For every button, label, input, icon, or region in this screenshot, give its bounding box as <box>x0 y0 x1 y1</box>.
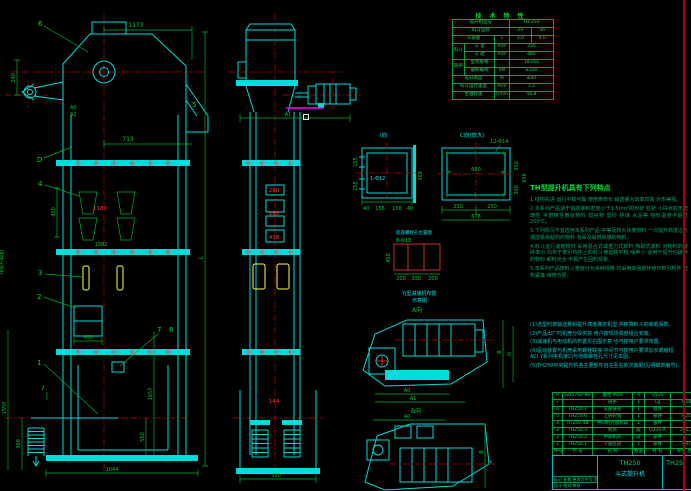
drawing-model: TH250 <box>598 459 662 467</box>
balloon-7: 7 <box>157 326 161 334</box>
drive-dim-a: a <box>488 460 494 463</box>
bom-wt: 087 <box>671 442 691 449</box>
bom-code: TH250.6 <box>563 414 593 421</box>
spec-value: 250 <box>509 44 553 52</box>
detail-c-300: 300 <box>514 185 520 195</box>
detail-i-b4: 40 <box>407 206 413 212</box>
drawing-number-partial: TH25 <box>666 459 683 467</box>
bom-name: 中部机壳 <box>593 435 633 442</box>
feature-line: 3.下列情况不宜选用本系列产品 中等及较大块度物料 一次提升高度过大 潮湿极易粘… <box>530 228 688 242</box>
drive-dim-a0: A0 <box>404 388 411 394</box>
spec-value: 3.0 <box>509 36 531 44</box>
bom-no: 1 <box>553 442 563 449</box>
bom-qty: 段 <box>633 435 645 442</box>
title-block-number-zone: TH25 <box>663 456 691 489</box>
bom-wt <box>671 393 691 400</box>
bom-wt: 9.06 <box>671 400 691 407</box>
feature-line: 2.本系列产品适于输送堆积密度小于1.5t/m³的粉状 粒状 小块状的无磨琢性 … <box>530 206 688 226</box>
bom-wt <box>671 407 691 414</box>
spec-row: 斗容量 L 3.0 4.0 <box>453 36 554 44</box>
bolt-plan-200b: 200 <box>428 276 438 282</box>
side-elevation-view: A1 280 180 438 144 520 <box>228 0 363 491</box>
bom-no: 7 <box>553 400 563 407</box>
dim-1382: 1382 <box>95 242 108 248</box>
title-block: 标记 处数 更改文件号 签字 日期 设计 校对 审核 TH250 斗式提升机 T… <box>552 455 691 490</box>
bom-wt <box>671 421 691 428</box>
spec-label: 料斗型式 <box>453 28 510 36</box>
spec-value: TH 250 <box>509 20 553 28</box>
dim-280: 280 <box>269 188 280 194</box>
detail-c-250a: 250 <box>453 204 463 210</box>
balloon-D: D <box>37 156 42 164</box>
spec-label: 主轴转速 <box>453 92 495 100</box>
dim-1550: 1550 <box>2 402 8 415</box>
drive-dim-b: B <box>497 350 503 354</box>
casing-body <box>46 115 198 461</box>
balloon-5: 5 <box>192 101 196 109</box>
spec-value: ≥320 <box>509 68 553 76</box>
spec-label: 斗容量 <box>453 36 495 44</box>
bom-no: 5 <box>553 414 563 421</box>
dim-550: 550 <box>140 432 146 442</box>
bom-qty: 1 <box>633 407 645 414</box>
notes-block: (1)选型时按输送量和提升高度确定机型 并核算料斗的装载系数。 (2)产品出厂时… <box>530 322 686 371</box>
balloon-1: 1 <box>37 359 41 367</box>
spec-label: 提升高度 <box>453 76 495 84</box>
detail-i-b2: 156 <box>375 206 385 212</box>
drive-captions: YJ型减速机布置 示意图 A向 <box>401 290 437 314</box>
bom-mat: Q235 <box>645 393 671 400</box>
bom-qty: 1 <box>633 414 645 421</box>
spec-label: 斗 距 <box>465 52 495 60</box>
spec-row: 提升高度 m ≤40 <box>453 76 554 84</box>
bom-table: 8GB5782-88螺栓 M204Q235 7链条1Lg9.06 6TH250.… <box>552 392 691 456</box>
revision-row: 标记 处数 更改文件号 签字 日期 <box>553 476 597 483</box>
spec-group: 料斗 <box>453 44 465 60</box>
drive-view-top: B H A0 A1 B向 <box>363 320 513 415</box>
dim-height-note: H(提升高度) <box>0 249 5 274</box>
detail-i-b1: 40 <box>363 206 369 212</box>
dim-a1: A1 <box>70 112 77 118</box>
drawing-name: 斗式提升机 <box>598 469 662 478</box>
bom-name: 链条 <box>593 400 633 407</box>
bom-row: 1TH250.1下部区段1部件087 <box>553 442 691 449</box>
bom-code: GB5782-88 <box>563 393 593 400</box>
anchor-bolt-plan: 底座螺栓孔位置图 8-Φ18 450 200 300 200 <box>386 229 440 282</box>
balloon-4: 4 <box>38 180 43 188</box>
detail-i-b3: 156 <box>392 206 402 212</box>
bom-code: TH250.3 <box>563 428 593 435</box>
spec-row: 料斗 斗 宽 mm 250 <box>453 44 554 52</box>
spec-value: 18×64 <box>509 60 553 68</box>
spec-unit: r/min <box>495 92 510 100</box>
bolt-plan-title: 底座螺栓孔位置图 <box>396 229 432 236</box>
side-head-and-motor <box>236 24 356 112</box>
spec-value: Zh <box>509 28 531 36</box>
title-block-revision-zone: 标记 处数 更改文件号 签字 日期 设计 校对 审核 <box>553 456 598 489</box>
bom-name: 头部链轮 <box>593 407 633 414</box>
note-line: (1)选型时按输送量和提升高度确定机型 并核算料斗的装载系数。 <box>530 322 686 329</box>
spec-unit <box>495 60 510 68</box>
section-mark-I: I <box>42 384 44 392</box>
bom-name: 下部区段 <box>593 442 633 449</box>
dim-438: 438 <box>269 235 280 241</box>
drawing-frame-right-border <box>683 0 685 491</box>
dim-520: 520 <box>271 473 281 479</box>
spec-row: 提升机型号 TH 250 <box>453 20 554 28</box>
balloon-6: 6 <box>38 20 43 28</box>
spec-unit: mm <box>495 44 510 52</box>
balloon-8: 8 <box>169 326 173 334</box>
detail-c-678: 678 <box>471 214 481 220</box>
cursor-pickbox <box>303 114 309 120</box>
head-section <box>22 22 208 132</box>
spec-unit: L <box>495 36 510 44</box>
bom-row: 5TH250.6上链轮组1部件025 <box>553 414 691 421</box>
cad-canvas: 1173 240 A0 A1 713 450 1180 1382 400 155… <box>0 0 691 491</box>
bom-qty: 4 <box>633 393 645 400</box>
bom-row: 7链条1Lg9.06 <box>553 400 691 407</box>
bom-mat: 组件 <box>645 407 671 414</box>
features-block: TH型提升机具有下列特点 1.结构先进 运行平稳可靠 使用寿命长 输送量大效率较… <box>530 183 688 281</box>
spec-unit: kN <box>495 68 510 76</box>
dim-a0: A0 <box>70 105 77 111</box>
spec-label: 破断载荷 <box>465 68 495 76</box>
dim-300: 300 <box>16 439 22 449</box>
bom-wt: 205.2 <box>671 428 691 435</box>
bom-mat: 部件 <box>645 421 671 428</box>
spec-unit: mm <box>495 52 510 60</box>
dim-180: 180 <box>269 211 280 217</box>
bom-mat: Q235-A <box>645 428 671 435</box>
drive-caption-1: YJ型减速机布置 <box>401 290 437 297</box>
bucket-section-profiles <box>79 192 135 240</box>
detail-views: I向 1-Φ12 155 155 360 40 156 156 40 C向(放大… <box>350 110 550 330</box>
signature-row: 设计 校对 审核 <box>553 482 597 489</box>
bom-qty: 段 <box>633 428 645 435</box>
bom-name: 螺栓 M20 <box>593 393 633 400</box>
bom-code: TH250.7 <box>563 407 593 414</box>
spec-label: 料斗运行速度 <box>453 84 495 92</box>
detail-i-360: 360 <box>418 171 424 181</box>
spec-group: 链条 <box>453 60 465 76</box>
dim-450: 450 <box>51 207 57 217</box>
bom-code <box>563 400 593 407</box>
balloon-3: 3 <box>38 269 42 277</box>
dim-top-width: 1173 <box>128 22 143 29</box>
detail-i-155b: 155 <box>353 181 359 191</box>
buckets-yellow <box>83 266 123 290</box>
bom-qty: 1 <box>633 442 645 449</box>
note-line: (2)产品出厂时机壳分段供货 用户按现场高度组合安装。 <box>530 331 686 338</box>
bom-wt: 025 <box>671 414 691 421</box>
spec-value: 480 <box>509 52 553 60</box>
spec-row: 料斗型式 Zh Sh <box>453 28 554 36</box>
feature-line: 5.本系列产品按料斗宽度分为多种规格 均采用高强度环链作牵引构件 结构紧凑 维修… <box>530 266 688 280</box>
spec-row: 破断载荷 kN ≥320 <box>453 68 554 76</box>
spec-unit: m <box>495 76 510 84</box>
bom-name: 上链轮组 <box>593 414 633 421</box>
features-title: TH型提升机具有下列特点 <box>530 183 688 193</box>
bom-row: 6TH250.7头部链轮1组件 <box>553 407 691 414</box>
view-b-label: B向 <box>411 407 421 415</box>
spec-label: 斗 宽 <box>465 44 495 52</box>
bom-mat: Lg <box>645 400 671 407</box>
drive-view-bottom: A0 B a <box>365 414 495 490</box>
bom-no: 3 <box>553 428 563 435</box>
spec-label: 型式规格 <box>465 60 495 68</box>
spec-row: 链条 型式规格 18×64 <box>453 60 554 68</box>
dim-400: 400 <box>83 335 93 341</box>
spec-value: 44.8 <box>509 92 553 100</box>
balloon-2: 2 <box>37 293 41 301</box>
bom-row: 2TH250.2中部机壳段部件 <box>553 435 691 442</box>
detail-c-656: 656 <box>522 173 528 183</box>
bom-name: 机壳 <box>593 428 633 435</box>
bom-qty: 1 <box>633 421 645 428</box>
bom-code: TH250.1 <box>563 442 593 449</box>
drive-dim-a0b: A0 <box>404 414 411 420</box>
detail-c-view: C向(放大) 12-Φ14 600 250 250 678 350 300 65… <box>438 131 528 220</box>
drive-dim-b2: B <box>479 450 485 454</box>
drive-dim-a1: A1 <box>410 396 417 402</box>
spec-value: 4.0 <box>531 36 553 44</box>
drive-caption-2: 示意图 <box>412 297 427 304</box>
dim-1657: 1657 <box>148 388 154 401</box>
note-line: (4)驱动装置与机壳采用螺栓联接 中间节可按用户要求加长或缩短 ACI,Y系列电… <box>530 348 686 361</box>
bom-no: 6 <box>553 407 563 414</box>
detail-i-title: I向 <box>380 131 387 139</box>
bolt-plan-300: 300 <box>411 276 421 282</box>
bom-no: 8 <box>553 393 563 400</box>
feature-line: 4.料斗运行速度较低 采用混合式或重力式卸料 掏取式装料 对物料的破碎率小 均布… <box>530 244 688 264</box>
bom-mat: 部件 <box>645 442 671 449</box>
detail-c-title: C向(放大) <box>460 131 485 139</box>
bom-row: 4TH250.4B中间机壳加长段1部件 <box>553 421 691 428</box>
detail-c-250b: 250 <box>487 204 497 210</box>
bolt-plan-holes: 8-Φ18 <box>396 238 411 244</box>
bom-row: 3TH250.3机壳段Q235-A205.2 <box>553 428 691 435</box>
bom-wt <box>671 435 691 442</box>
detail-i-155a: 155 <box>353 157 359 167</box>
title-block-name-zone: TH250 斗式提升机 <box>598 456 663 489</box>
note-line: (3)减速机与电动机的布置见右图示意 也可按用户要求布置。 <box>530 339 686 346</box>
bom-no: 4 <box>553 421 563 428</box>
dim-240: 240 <box>11 73 17 83</box>
dim-1180: 1180 <box>93 206 107 212</box>
note-line: (5)TH250中央提升机各主要部件自左至右依次装配(见明细表编号)。 <box>530 363 686 370</box>
spec-row: 料斗运行速度 m/s 1.2 <box>453 84 554 92</box>
front-elevation-view: 1173 240 A0 A1 713 450 1180 1382 400 155… <box>0 0 235 491</box>
bolt-plan-200a: 200 <box>396 276 406 282</box>
bom-mat: 部件 <box>645 414 671 421</box>
detail-c-350: 350 <box>514 161 520 171</box>
spec-value: 1.2 <box>509 84 553 92</box>
spec-unit: m/s <box>495 84 510 92</box>
dim-144: 144 <box>269 399 280 405</box>
bom-row: 8GB5782-88螺栓 M204Q235 <box>553 393 691 400</box>
bom-mat: 部件 <box>645 435 671 442</box>
dim-total-L: L <box>198 256 205 260</box>
bom-code: TH250.2 <box>563 435 593 442</box>
spec-row: 斗 距 mm 480 <box>453 52 554 60</box>
spec-label: 提升机型号 <box>453 20 510 28</box>
detail-i-note: 1-Φ12 <box>370 176 385 182</box>
bolt-plan-450: 450 <box>386 253 392 263</box>
detail-i-view: I向 1-Φ12 155 155 360 40 156 156 40 <box>353 131 424 212</box>
spec-table: 提升机型号 TH 250 料斗型式 Zh Sh 斗容量 L 3.0 4.0 料斗… <box>452 19 554 100</box>
detail-c-600: 600 <box>471 167 481 173</box>
detail-c-holes: 12-Φ14 <box>490 139 508 145</box>
dim-bottom-width: 1044 <box>106 467 119 473</box>
dim-713: 713 <box>122 136 134 143</box>
bom-name: 中间机壳加长段 <box>593 421 633 428</box>
feature-line: 1.结构先进 运行平稳可靠 使用寿命长 输送量大效率较高 外形美观。 <box>530 197 688 204</box>
bom-no: 2 <box>553 435 563 442</box>
drive-arrangement-views: B H A0 A1 B向 A0 B a <box>355 312 555 491</box>
bom-qty: 1 <box>633 400 645 407</box>
spec-value: Sh <box>531 28 553 36</box>
drive-dim-h: H <box>507 352 513 356</box>
bom-code: TH250.4B <box>563 421 593 428</box>
dim-side-a1: A1 <box>285 112 292 118</box>
spec-row: 主轴转速 r/min 44.8 <box>453 92 554 100</box>
spec-value: ≤40 <box>509 76 553 84</box>
